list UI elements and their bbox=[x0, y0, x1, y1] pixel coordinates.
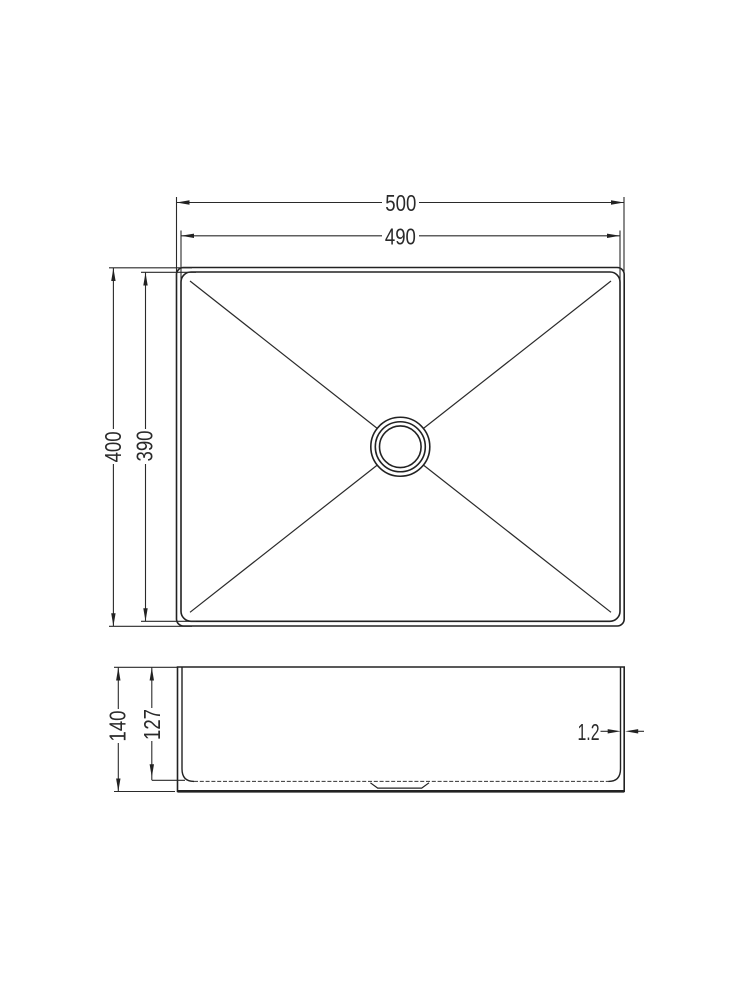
svg-text:400: 400 bbox=[100, 431, 126, 462]
svg-text:1.2: 1.2 bbox=[578, 719, 600, 745]
svg-text:490: 490 bbox=[385, 223, 416, 249]
svg-text:127: 127 bbox=[139, 709, 165, 740]
svg-text:140: 140 bbox=[104, 711, 130, 742]
svg-text:500: 500 bbox=[385, 190, 416, 216]
svg-text:390: 390 bbox=[131, 431, 157, 462]
